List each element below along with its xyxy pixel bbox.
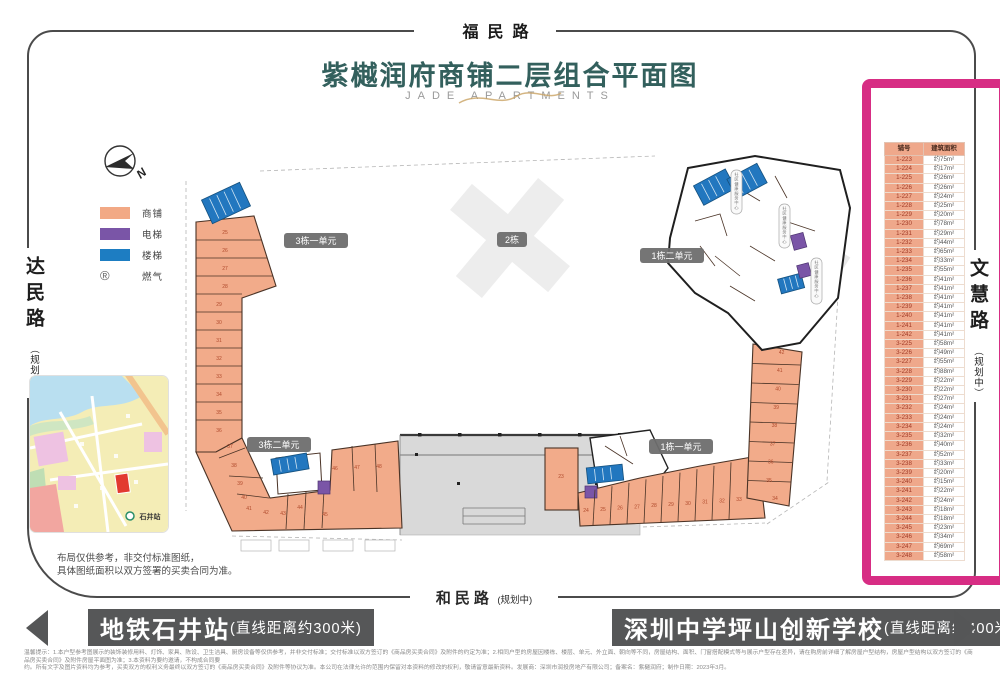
map-station-label: 石井站 [139, 512, 161, 521]
table-row: 1-228约25m² [885, 202, 965, 211]
cell-area: 约22m² [924, 376, 965, 385]
svg-text:26: 26 [617, 506, 623, 512]
cell-shop-no: 3-246 [885, 533, 924, 542]
cell-area: 约26m² [924, 174, 965, 183]
cell-shop-no: 1-229 [885, 211, 924, 220]
cell-shop-no: 3-233 [885, 413, 924, 422]
road-left-name: 达民路 [23, 256, 44, 334]
cell-area: 约26m² [924, 183, 965, 192]
svg-text:42: 42 [263, 510, 269, 516]
table-row: 1-233约65m² [885, 248, 965, 257]
cell-shop-no: 3-238 [885, 459, 924, 468]
dimension-boxes [241, 540, 395, 551]
table-row: 1-242约41m² [885, 330, 965, 339]
cell-shop-no: 1-230 [885, 220, 924, 229]
table-row: 3-243约18m² [885, 505, 965, 514]
legend-label: 楼梯 [142, 248, 163, 262]
cell-shop-no: 1-232 [885, 238, 924, 247]
cell-area: 约17m² [924, 165, 965, 174]
footer-metro-bar: 地铁石井站 (直线距离约300米) [88, 609, 374, 646]
cell-shop-no: 1-234 [885, 257, 924, 266]
table-row: 1-236约41m² [885, 275, 965, 284]
compass-icon: N [100, 142, 152, 190]
table-row: 3-230约22m² [885, 386, 965, 395]
road-right-name: 文慧路 [967, 258, 988, 336]
badge-1-1: 1栋一单元 [660, 441, 701, 452]
cell-area: 约22m² [924, 386, 965, 395]
cell-area: 约78m² [924, 220, 965, 229]
svg-text:36: 36 [216, 428, 222, 434]
table-row: 1-230约78m² [885, 220, 965, 229]
cell-shop-no: 3-226 [885, 349, 924, 358]
metro-station-icon [126, 512, 134, 520]
cell-area: 约41m² [924, 294, 965, 303]
svg-text:38: 38 [772, 423, 778, 429]
svg-text:26: 26 [222, 248, 228, 254]
cell-shop-no: 3-241 [885, 487, 924, 496]
school-distance: (直线距离约400米) [884, 617, 1000, 638]
table-row: 1-238约41m² [885, 294, 965, 303]
legend: 商铺电梯楼梯®燃气 [100, 202, 163, 286]
svg-text:25: 25 [222, 230, 228, 236]
cell-area: 约32m² [924, 432, 965, 441]
table-row: 1-241约41m² [885, 321, 965, 330]
svg-text:38: 38 [231, 463, 237, 469]
cell-shop-no: 1-227 [885, 192, 924, 201]
cell-area: 约22m² [924, 487, 965, 496]
table-row: 3-246约34m² [885, 533, 965, 542]
cell-area: 约58m² [924, 551, 965, 560]
table-row: 3-236约40m² [885, 441, 965, 450]
svg-text:47: 47 [354, 465, 360, 471]
table-row: 3-227约55m² [885, 358, 965, 367]
svg-text:35: 35 [766, 478, 772, 484]
compass-north-label: N [134, 165, 150, 182]
svg-text:39: 39 [237, 481, 243, 487]
cell-shop-no: 3-240 [885, 478, 924, 487]
table-row: 1-232约44m² [885, 238, 965, 247]
cell-area: 约75m² [924, 156, 965, 165]
road-right-sub: （规划中） [972, 346, 983, 399]
table-row: 1-225约26m² [885, 174, 965, 183]
badge-1-2: 1栋二单元 [651, 250, 692, 261]
svg-text:45: 45 [322, 512, 328, 518]
cell-area: 约41m² [924, 330, 965, 339]
table-row: 3-234约24m² [885, 422, 965, 431]
cell-shop-no: 1-241 [885, 321, 924, 330]
disclaimer-line1: 温馨提示：1.本户型参考图展示的装饰装修用料、灯饰、家具、陈设、卫生洁具、厨房设… [24, 650, 976, 665]
cell-shop-no: 1-226 [885, 183, 924, 192]
cell-shop-no: 3-236 [885, 441, 924, 450]
svg-text:39: 39 [773, 405, 779, 411]
cell-shop-no: 1-242 [885, 330, 924, 339]
cell-area: 约25m² [924, 202, 965, 211]
table-row: 1-235约55m² [885, 266, 965, 275]
svg-text:30: 30 [685, 501, 691, 507]
legend-label: 商铺 [142, 206, 163, 220]
gas-symbol-icon: ® [100, 268, 130, 283]
left-wing-shops [196, 216, 276, 452]
cell-area: 约55m² [924, 266, 965, 275]
svg-text:41: 41 [246, 506, 252, 512]
metro-title: 地铁石井站 [100, 610, 230, 645]
cell-shop-no: 3-235 [885, 432, 924, 441]
badge-3-2: 3栋二单元 [258, 439, 299, 450]
cell-shop-no: 1-235 [885, 266, 924, 275]
cell-area: 约33m² [924, 459, 965, 468]
cell-shop-no: 3-230 [885, 386, 924, 395]
cell-area: 约24m² [924, 422, 965, 431]
road-label-top: 福民路 [430, 18, 570, 42]
plan-note-line1: 布局仅供参考，非交付标准图纸， [57, 552, 238, 565]
road-bottom-name: 和民路 [436, 590, 493, 607]
svg-text:33: 33 [736, 497, 742, 503]
table-row: 1-234约33m² [885, 257, 965, 266]
svg-text:48: 48 [376, 464, 382, 470]
road-label-bottom: 和民路 (规划中) [408, 587, 560, 608]
cell-shop-no: 3-245 [885, 524, 924, 533]
cell-area: 约15m² [924, 478, 965, 487]
cell-shop-no: 1-223 [885, 156, 924, 165]
svg-text:34: 34 [216, 392, 222, 398]
legend-swatch [100, 228, 130, 240]
svg-text:46: 46 [332, 466, 338, 472]
svg-text:37: 37 [770, 441, 776, 447]
svg-text:29: 29 [668, 502, 674, 508]
cell-area: 约24m² [924, 192, 965, 201]
svg-text:33: 33 [216, 374, 222, 380]
table-header: 建筑面积 [924, 143, 965, 156]
arrow-left-icon [26, 610, 48, 646]
table-row: 3-235约32m² [885, 432, 965, 441]
cell-area: 约18m² [924, 505, 965, 514]
cell-shop-no: 3-244 [885, 514, 924, 523]
svg-text:35: 35 [216, 410, 222, 416]
svg-text:32: 32 [216, 356, 222, 362]
svg-text:24: 24 [583, 508, 589, 514]
legend-item: 电梯 [100, 223, 163, 244]
cell-shop-no: 3-247 [885, 542, 924, 551]
road-bottom-sub: (规划中) [497, 595, 532, 606]
disclaimer: 温馨提示：1.本户型参考图展示的装饰装修用料、灯饰、家具、陈设、卫生洁具、厨房设… [24, 650, 976, 673]
svg-text:42: 42 [779, 350, 785, 356]
plan-note-line2: 具体图纸面积以双方签署的买卖合同为准。 [57, 565, 238, 578]
table-row: 1-224约17m² [885, 165, 965, 174]
cell-area: 约18m² [924, 514, 965, 523]
school-title: 深圳中学坪山创新学校 [624, 610, 884, 645]
cell-shop-no: 1-231 [885, 229, 924, 238]
cell-area: 约41m² [924, 275, 965, 284]
cell-area: 约69m² [924, 542, 965, 551]
gold-flourish-icon [455, 88, 565, 110]
legend-item: 商铺 [100, 202, 163, 223]
cell-shop-no: 3-242 [885, 496, 924, 505]
floor-plan: 社区健康服务中心 社区健康服务中心 社区健康服务中心 3栋一单元 2栋 1栋二单… [175, 126, 865, 556]
svg-text:31: 31 [216, 338, 222, 344]
legend-label: 燃气 [142, 269, 163, 283]
shop-area-table: 铺号建筑面积 1-223约75m²1-224约17m²1-225约26m²1-2… [884, 142, 965, 561]
badge-2: 2栋 [505, 234, 519, 245]
table-row: 1-231约29m² [885, 229, 965, 238]
svg-text:31: 31 [702, 500, 708, 506]
legend-swatch [100, 207, 130, 219]
svg-text:44: 44 [297, 505, 303, 511]
cell-area: 约24m² [924, 496, 965, 505]
svg-text:37: 37 [227, 444, 233, 450]
cell-shop-no: 1-239 [885, 303, 924, 312]
cell-shop-no: 3-248 [885, 551, 924, 560]
cell-shop-no: 3-225 [885, 340, 924, 349]
table-row: 3-228约88m² [885, 367, 965, 376]
table-row: 1-240约41m² [885, 312, 965, 321]
table-row: 3-239约20m² [885, 468, 965, 477]
svg-text:27: 27 [634, 504, 640, 510]
cell-shop-no: 1-236 [885, 275, 924, 284]
svg-text:28: 28 [222, 284, 228, 290]
cell-shop-no: 1-237 [885, 284, 924, 293]
svg-text:28: 28 [651, 503, 657, 509]
svg-text:29: 29 [216, 302, 222, 308]
table-row: 3-247约69m² [885, 542, 965, 551]
svg-text:40: 40 [241, 495, 247, 501]
svg-text:25: 25 [600, 507, 606, 513]
arrow-right-icon [954, 610, 976, 646]
table-row: 3-232约24m² [885, 404, 965, 413]
cell-area: 约41m² [924, 321, 965, 330]
cell-area: 约24m² [924, 413, 965, 422]
table-row: 3-237约52m² [885, 450, 965, 459]
table-row: 1-229约20m² [885, 211, 965, 220]
cell-shop-no: 1-233 [885, 248, 924, 257]
cell-shop-no: 3-232 [885, 404, 924, 413]
cell-shop-no: 1-228 [885, 202, 924, 211]
road-label-right: 文慧路 （规划中） [964, 258, 991, 399]
cell-area: 约29m² [924, 229, 965, 238]
table-row: 3-231约27m² [885, 395, 965, 404]
table-row: 3-233约24m² [885, 413, 965, 422]
cell-area: 约44m² [924, 238, 965, 247]
table-row: 3-240约15m² [885, 478, 965, 487]
cell-shop-no: 3-239 [885, 468, 924, 477]
svg-text:32: 32 [719, 498, 725, 504]
location-map: 石井站 [30, 376, 168, 532]
table-row: 3-225约58m² [885, 340, 965, 349]
cell-shop-no: 1-238 [885, 294, 924, 303]
cell-area: 约33m² [924, 257, 965, 266]
cell-area: 约23m² [924, 524, 965, 533]
cell-shop-no: 3-243 [885, 505, 924, 514]
table-row: 1-226约26m² [885, 183, 965, 192]
svg-text:30: 30 [216, 320, 222, 326]
svg-text:23: 23 [558, 474, 564, 480]
cell-area: 约58m² [924, 340, 965, 349]
cell-area: 约88m² [924, 367, 965, 376]
svg-text:43: 43 [280, 511, 286, 517]
cell-area: 约40m² [924, 441, 965, 450]
cell-area: 约41m² [924, 312, 965, 321]
table-row: 1-227约24m² [885, 192, 965, 201]
metro-distance: (直线距离约300米) [230, 617, 362, 638]
cell-shop-no: 1-225 [885, 174, 924, 183]
table-row: 1-239约41m² [885, 303, 965, 312]
legend-label: 电梯 [142, 227, 163, 241]
cell-shop-no: 1-224 [885, 165, 924, 174]
table-row: 3-238约33m² [885, 459, 965, 468]
table-header: 铺号 [885, 143, 924, 156]
map-project-site [115, 473, 131, 494]
svg-text:27: 27 [222, 266, 228, 272]
cell-shop-no: 3-229 [885, 376, 924, 385]
cell-area: 约41m² [924, 284, 965, 293]
cell-shop-no: 1-240 [885, 312, 924, 321]
table-row: 1-223约75m² [885, 156, 965, 165]
cell-shop-no: 3-227 [885, 358, 924, 367]
svg-text:40: 40 [775, 387, 781, 393]
cell-shop-no: 3-237 [885, 450, 924, 459]
table-row: 3-245约23m² [885, 524, 965, 533]
cell-shop-no: 3-231 [885, 395, 924, 404]
cell-area: 约20m² [924, 468, 965, 477]
legend-item: 楼梯 [100, 244, 163, 265]
table-row: 3-242约24m² [885, 496, 965, 505]
table-row: 3-229约22m² [885, 376, 965, 385]
cell-area: 约55m² [924, 358, 965, 367]
footer-school-bar: 深圳中学坪山创新学校 (直线距离约400米) [612, 609, 1000, 646]
table-row: 3-248约58m² [885, 551, 965, 560]
badge-3-1: 3栋一单元 [295, 235, 336, 246]
legend-item: ®燃气 [100, 265, 163, 286]
cell-area: 约20m² [924, 211, 965, 220]
disclaimer-line2: 约。所有文字及图片资料均为参考，买卖双方的权利义务最终以双方签订的《商品房买卖合… [24, 665, 976, 673]
cell-shop-no: 3-228 [885, 367, 924, 376]
plan-note: 布局仅供参考，非交付标准图纸， 具体图纸面积以双方签署的买卖合同为准。 [57, 552, 238, 578]
svg-text:34: 34 [772, 496, 778, 502]
cell-area: 约41m² [924, 303, 965, 312]
cell-area: 约24m² [924, 404, 965, 413]
table-row: 3-244约18m² [885, 514, 965, 523]
table-row: 1-237约41m² [885, 284, 965, 293]
cell-shop-no: 3-234 [885, 422, 924, 431]
svg-text:41: 41 [777, 368, 783, 374]
poster: 福民路 和民路 (规划中) 达民路 （规划中） 文慧路 （规划中） 紫樾润府商铺… [0, 0, 1000, 678]
table-row: 3-226约49m² [885, 349, 965, 358]
cell-area: 约34m² [924, 533, 965, 542]
cell-area: 约27m² [924, 395, 965, 404]
table-row: 3-241约22m² [885, 487, 965, 496]
cell-area: 约65m² [924, 248, 965, 257]
svg-text:36: 36 [768, 460, 774, 466]
legend-swatch [100, 249, 130, 261]
cell-area: 约52m² [924, 450, 965, 459]
cell-area: 约49m² [924, 349, 965, 358]
